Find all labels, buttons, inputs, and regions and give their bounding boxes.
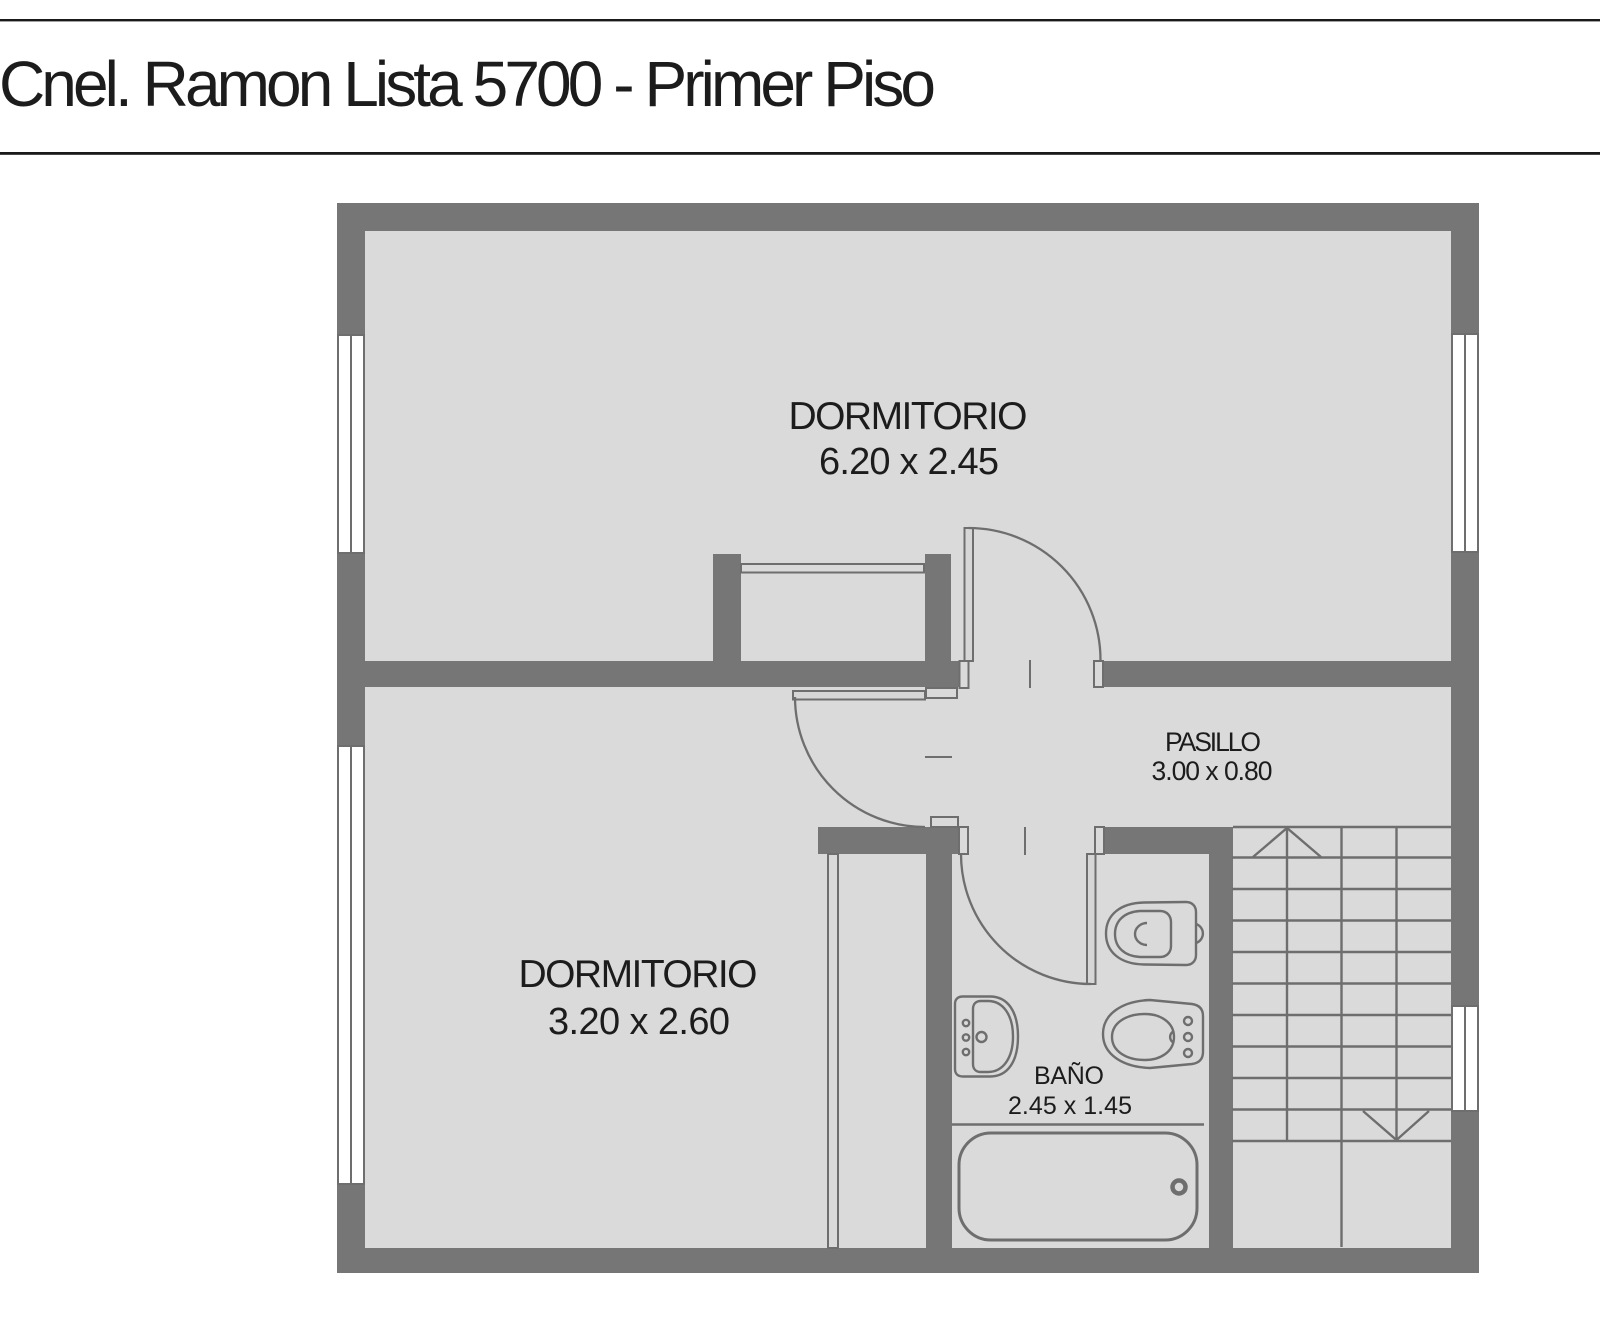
svg-text:3.00 x 0.80: 3.00 x 0.80 bbox=[1152, 756, 1273, 786]
svg-text:3.20 x 2.60: 3.20 x 2.60 bbox=[548, 1001, 730, 1043]
svg-text:DORMITORIO: DORMITORIO bbox=[519, 953, 758, 996]
svg-text:Cnel. Ramon Lista 5700 - Prime: Cnel. Ramon Lista 5700 - Primer Piso bbox=[0, 48, 936, 120]
svg-text:6.20 x 2.45: 6.20 x 2.45 bbox=[819, 441, 999, 483]
svg-text:DORMITORIO: DORMITORIO bbox=[789, 395, 1028, 438]
svg-text:2.45 x 1.45: 2.45 x 1.45 bbox=[1008, 1092, 1132, 1120]
svg-text:BAÑO: BAÑO bbox=[1034, 1061, 1104, 1090]
svg-text:PASILLO: PASILLO bbox=[1165, 727, 1261, 757]
